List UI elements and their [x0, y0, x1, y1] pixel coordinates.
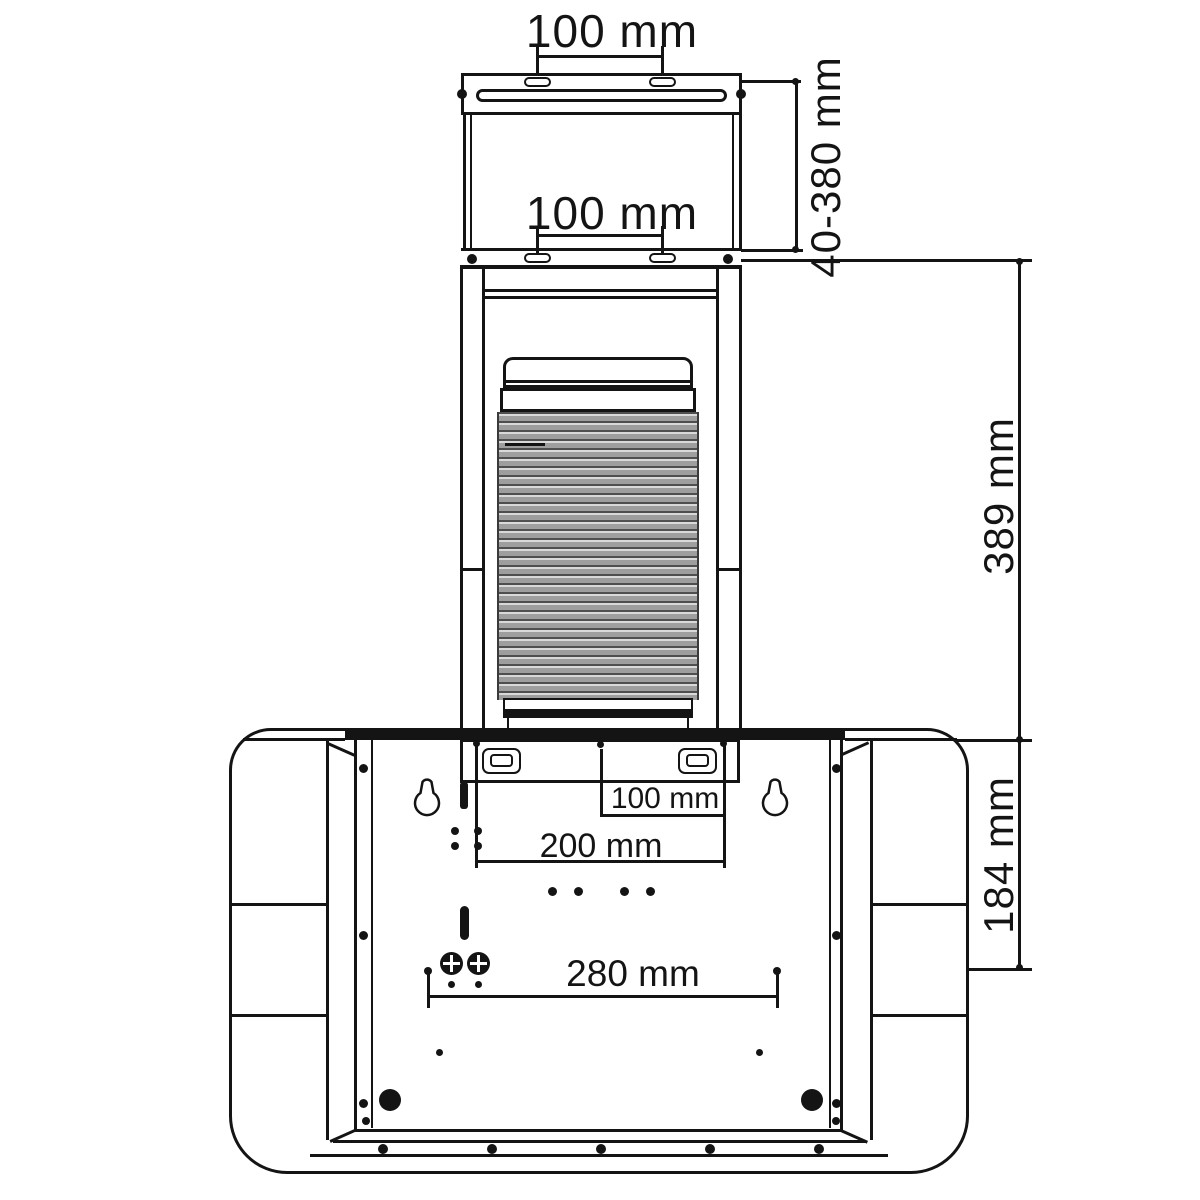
bottom-screw	[378, 1144, 388, 1154]
panel-hole	[451, 842, 459, 850]
upper-chimney-wall-right-inner	[732, 114, 734, 251]
ext-line-280-left	[427, 974, 430, 1008]
lower-chimney-wall-right	[739, 265, 742, 735]
upper-bracket-long-slot	[476, 89, 727, 102]
lower-chimney-wall-left-inner	[482, 269, 485, 735]
cable-slot	[460, 906, 469, 940]
upper-chimney-wall-right	[739, 114, 742, 251]
ext-line-280-right	[776, 974, 779, 1008]
panel-hole	[646, 887, 655, 896]
chimney-seam-left	[460, 568, 485, 571]
duct-bottom-band	[503, 710, 693, 718]
dim-label-280: 280 mm	[533, 953, 733, 995]
panel-screw	[832, 931, 841, 940]
dim-end-marker	[792, 246, 799, 253]
tray-line-lower	[310, 1154, 888, 1157]
dim-label-top-slot-spacing: 100 mm	[512, 4, 712, 58]
panel-hole	[832, 1117, 840, 1125]
foot-cap-left	[379, 1089, 401, 1111]
panel-hole	[448, 981, 455, 988]
body-top-inner-line-right	[845, 738, 957, 741]
tray-line-upper	[333, 1140, 865, 1143]
dim-line-telescopic	[795, 80, 798, 251]
panel-hole	[756, 1049, 763, 1056]
lower-bracket-slot-left	[524, 253, 551, 263]
panel-screw	[359, 1099, 368, 1108]
plate-hinge-bar	[460, 782, 468, 809]
dim-line-mid-100	[537, 234, 664, 237]
bottom-screw	[487, 1144, 497, 1154]
bottom-screw	[596, 1144, 606, 1154]
lower-chimney-rib	[484, 289, 717, 292]
panel-hole	[474, 827, 482, 835]
duct-reference-dash	[505, 443, 545, 446]
right-cap-divider-upper	[873, 903, 968, 906]
panel-hole	[474, 842, 482, 850]
duct-collar-top	[503, 357, 693, 388]
body-top-inner-line-left	[243, 738, 345, 741]
dim-label-lower-slot-spacing: 100 mm	[512, 186, 712, 240]
rear-panel-inner-line-left	[371, 740, 373, 1128]
panel-screw	[832, 764, 841, 773]
technical-drawing-canvas: 100 mm 100 mm 40-380 mm 389 mm	[0, 0, 1200, 1200]
right-cap-edge	[870, 740, 873, 1140]
panel-hole	[436, 1049, 443, 1056]
dim-end-marker	[792, 78, 799, 85]
dim-line-inner-100	[600, 814, 726, 817]
panel-screw	[359, 931, 368, 940]
dim-end-marker	[1016, 258, 1023, 265]
dim-label-telescopic-range: 40-380 mm	[803, 52, 849, 282]
ext-line-389-top	[741, 259, 1032, 262]
left-cap-edge	[326, 740, 329, 1140]
plate-slot-right-inner	[686, 754, 709, 767]
upper-bracket-slot-left	[524, 77, 551, 87]
lower-bracket-slot-right	[649, 253, 676, 263]
panel-hole	[451, 827, 459, 835]
lower-chimney-wall-left	[460, 265, 463, 735]
screw-cross	[450, 955, 453, 972]
upper-chimney-wall-left-inner	[470, 114, 472, 251]
panel-hole	[548, 887, 557, 896]
upper-bracket-bolt-left	[457, 89, 467, 99]
phillips-screw-left	[440, 952, 463, 975]
lower-bracket-top-edge	[461, 248, 742, 251]
dim-label-body-offset: 184 mm	[976, 760, 1022, 950]
upper-chimney-wall-left	[463, 114, 466, 251]
dim-end-marker	[1016, 736, 1023, 743]
right-cap-divider-lower	[873, 1014, 968, 1017]
upper-bracket-slot-right	[649, 77, 676, 87]
keyhole-slot-left	[410, 774, 444, 818]
dim-label-offset-100: 100 mm	[565, 782, 765, 816]
upper-bracket-bolt-right	[736, 89, 746, 99]
dim-line-top-100	[537, 55, 664, 58]
panel-hole	[574, 887, 583, 896]
duct-corrugated-hose	[497, 412, 699, 700]
plate-slot-left-inner	[490, 754, 513, 767]
dim-end-marker	[1016, 964, 1023, 971]
ref-point	[597, 741, 604, 748]
foot-cap-right	[801, 1089, 823, 1111]
bottom-screw	[705, 1144, 715, 1154]
screw-cross	[477, 955, 480, 972]
lower-chimney-wall-right-inner	[716, 269, 719, 735]
lower-chimney-top-edge	[460, 265, 742, 269]
phillips-screw-right	[467, 952, 490, 975]
panel-hole	[475, 981, 482, 988]
lower-bracket-bolt-right	[723, 254, 733, 264]
bottom-screw	[814, 1144, 824, 1154]
panel-hole	[362, 1117, 370, 1125]
dim-line-inner-200	[475, 860, 726, 863]
panel-screw	[832, 1099, 841, 1108]
panel-hole	[620, 887, 629, 896]
left-cap-divider-lower	[231, 1014, 326, 1017]
duct-collar-band	[500, 388, 696, 412]
lower-bracket-bolt-left	[467, 254, 477, 264]
left-cap-divider-upper	[231, 903, 326, 906]
lower-chimney-rib	[484, 296, 717, 299]
chimney-seam-right	[716, 568, 742, 571]
dim-label-chimney-height: 389 mm	[976, 401, 1022, 591]
duct-collar-line	[506, 380, 690, 383]
rear-panel-inner-line-right	[829, 740, 831, 1128]
dim-line-280	[427, 995, 779, 998]
panel-screw	[359, 764, 368, 773]
